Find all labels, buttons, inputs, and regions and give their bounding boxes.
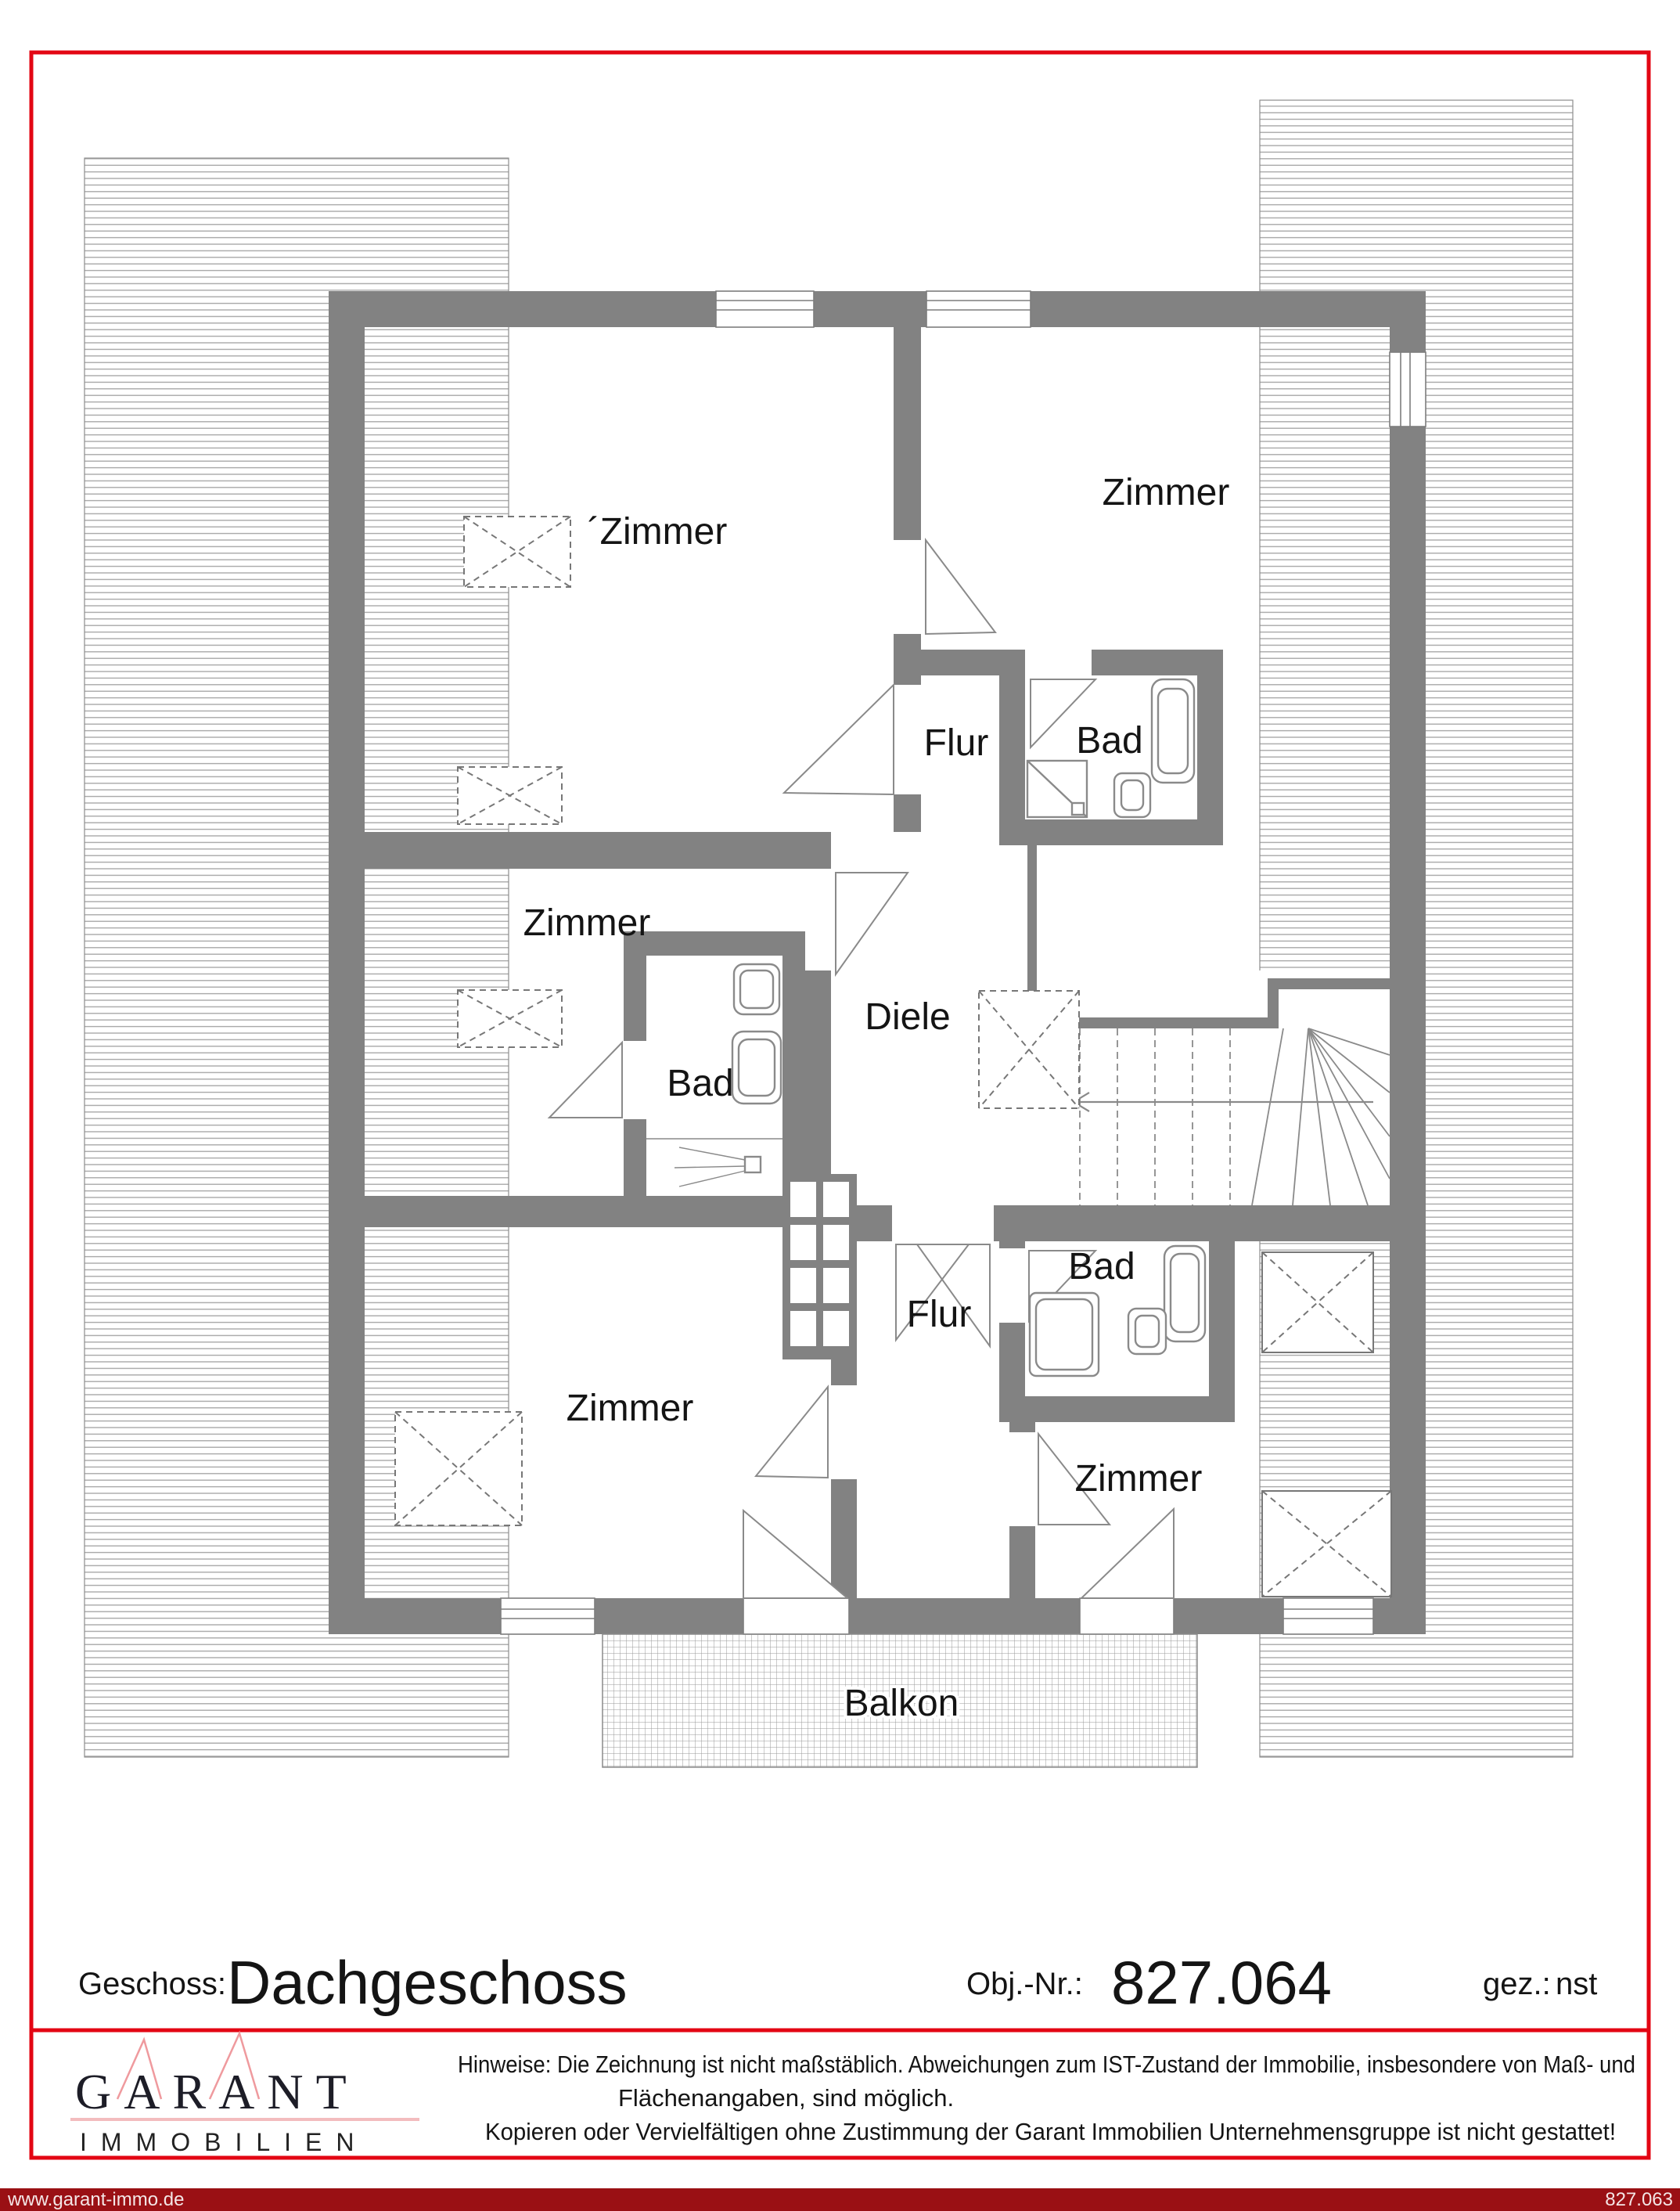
floor-plan: ´Zimmer Zimmer Flur Bad Zimmer Bad Diele… [85,100,1573,1767]
obj-nr-label: Obj.-Nr.: [966,1967,1083,2001]
room-label-zimmer-bottom-right: Zimmer [1075,1458,1203,1500]
roof-window-box [464,517,570,587]
room-label-bad-bottom: Bad [1068,1246,1135,1287]
notice-line-2: Flächenangaben, sind möglich. [618,2084,954,2112]
roof-window-box [395,1412,522,1525]
room-label-bad-mid: Bad [667,1063,733,1104]
roof-window-box [458,990,562,1047]
notice-text: Hinweise: Die Zeichnung ist nicht maßstä… [458,2051,1635,2145]
bathtub-icon [1152,679,1194,783]
bottom-bar-website: www.garant-immo.de [7,2189,184,2210]
roof-window-box [1262,1491,1391,1597]
gez-label: gez.: [1483,1967,1551,2001]
room-label-zimmer-mid-left: Zimmer [523,902,651,944]
bottom-bar-object-code: 827.063 [1605,2189,1673,2210]
notice-line-3: Kopieren oder Vervielfältigen ohne Zusti… [485,2118,1616,2145]
bottom-bar: www.garant-immo.de 827.063 [0,2188,1680,2211]
room-label-zimmer-bottom-left: Zimmer [567,1388,694,1429]
room-label-balkon: Balkon [844,1683,959,1724]
notice-line-1: Hinweise: Die Zeichnung ist nicht maßstä… [458,2051,1635,2078]
obj-nr-value: 827.064 [1111,1948,1332,2017]
room-label-bad-top: Bad [1076,720,1142,762]
gez-value: nst [1556,1967,1597,2001]
room-label-flur-bottom: Flur [907,1294,972,1335]
room-label-zimmer-top-left: ´Zimmer [588,511,728,553]
title-row: Geschoss: Dachgeschoss Obj.-Nr.: 827.064… [78,1948,1597,2017]
logo-title: GARANT [75,2064,359,2119]
room-label-diele: Diele [865,996,950,1038]
geschoss-label: Geschoss: [78,1967,226,2001]
sink-icon [732,1032,781,1104]
shower-icon [1027,761,1087,817]
logo-underline [70,2118,419,2121]
room-label-zimmer-top-right: Zimmer [1103,472,1230,513]
bathtub-icon [1164,1246,1205,1341]
company-logo: GARANT IMMOBILIEN [70,2033,419,2156]
room-label-flur-top: Flur [924,722,989,764]
roof-window-box [979,991,1079,1108]
floorplan-page: ´Zimmer Zimmer Flur Bad Zimmer Bad Diele… [0,0,1680,2211]
toilet-icon [1114,773,1150,817]
sink-icon [734,964,779,1014]
geschoss-value: Dachgeschoss [227,1948,628,2017]
shower-icon [1030,1293,1099,1376]
roof-window-box [1262,1252,1373,1352]
toilet-icon [1128,1309,1166,1354]
staircase-area [1037,970,1390,1205]
logo-subtitle: IMMOBILIEN [80,2128,368,2156]
shower-icon [646,1139,782,1187]
roof-window-box [458,767,562,824]
